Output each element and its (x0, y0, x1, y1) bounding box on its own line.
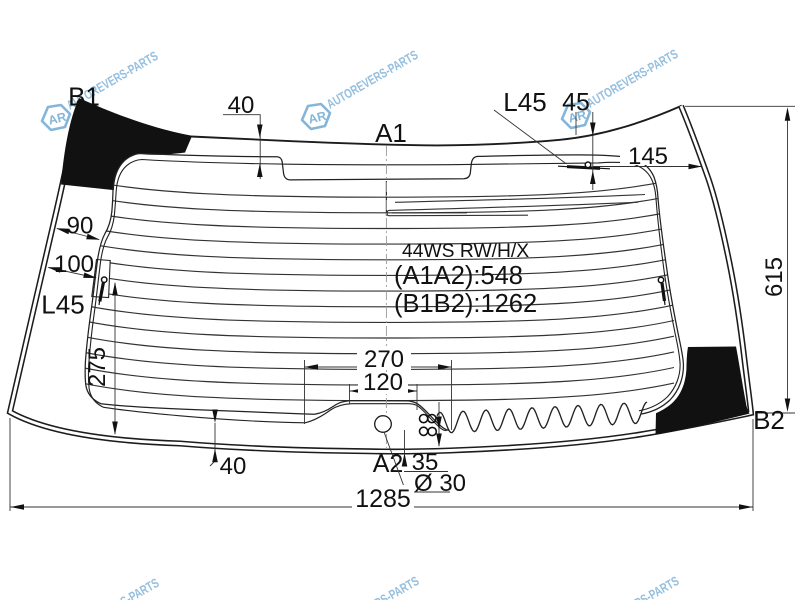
svg-text:B1: B1 (68, 82, 100, 112)
svg-text:145: 145 (628, 143, 668, 170)
svg-text:L45: L45 (41, 290, 84, 320)
svg-text:40: 40 (228, 92, 255, 119)
svg-text:615: 615 (761, 257, 788, 297)
svg-text:90: 90 (67, 213, 94, 240)
svg-text:45: 45 (562, 89, 590, 117)
svg-text:100: 100 (54, 251, 94, 278)
svg-text:275: 275 (84, 347, 111, 387)
svg-text:44WS RW/H/X: 44WS RW/H/X (402, 241, 529, 262)
svg-text:(A1A2):548: (A1A2):548 (394, 262, 523, 290)
svg-text:A1: A1 (375, 118, 407, 148)
svg-text:1285: 1285 (355, 485, 411, 513)
svg-text:(B1B2):1262: (B1B2):1262 (394, 290, 537, 318)
svg-text:120: 120 (363, 369, 403, 396)
svg-text:A2: A2 (373, 450, 404, 478)
svg-text:Ø 30: Ø 30 (414, 470, 466, 497)
svg-text:B2: B2 (753, 405, 785, 435)
svg-text:40: 40 (220, 453, 247, 480)
svg-text:L45: L45 (503, 87, 546, 117)
